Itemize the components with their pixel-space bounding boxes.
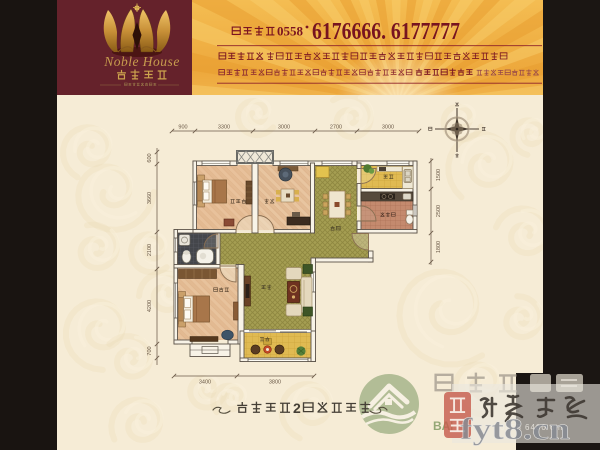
svg-text:6176666. 6177777: 6176666. 6177777 xyxy=(312,19,460,45)
svg-text:3400: 3400 xyxy=(199,380,211,386)
svg-text:900: 900 xyxy=(178,125,187,131)
svg-text:600: 600 xyxy=(147,153,153,162)
svg-text:1800: 1800 xyxy=(436,241,442,253)
svg-text:0558: 0558 xyxy=(277,24,304,39)
svg-text:3000: 3000 xyxy=(278,125,290,131)
svg-text:3660: 3660 xyxy=(147,192,153,204)
svg-text:4200: 4200 xyxy=(147,300,153,312)
svg-text:3000: 3000 xyxy=(382,125,394,131)
svg-text:3800: 3800 xyxy=(269,380,281,386)
svg-text:2500: 2500 xyxy=(436,205,442,217)
svg-text:2100: 2100 xyxy=(147,244,153,256)
svg-text:700: 700 xyxy=(147,346,153,355)
svg-text:fyt8.cn: fyt8.cn xyxy=(460,411,570,446)
svg-text:Noble House: Noble House xyxy=(103,54,180,69)
svg-text:3300: 3300 xyxy=(218,125,230,131)
svg-text:2700: 2700 xyxy=(330,125,342,131)
svg-text:1500: 1500 xyxy=(436,169,442,181)
svg-text:2: 2 xyxy=(293,400,301,416)
